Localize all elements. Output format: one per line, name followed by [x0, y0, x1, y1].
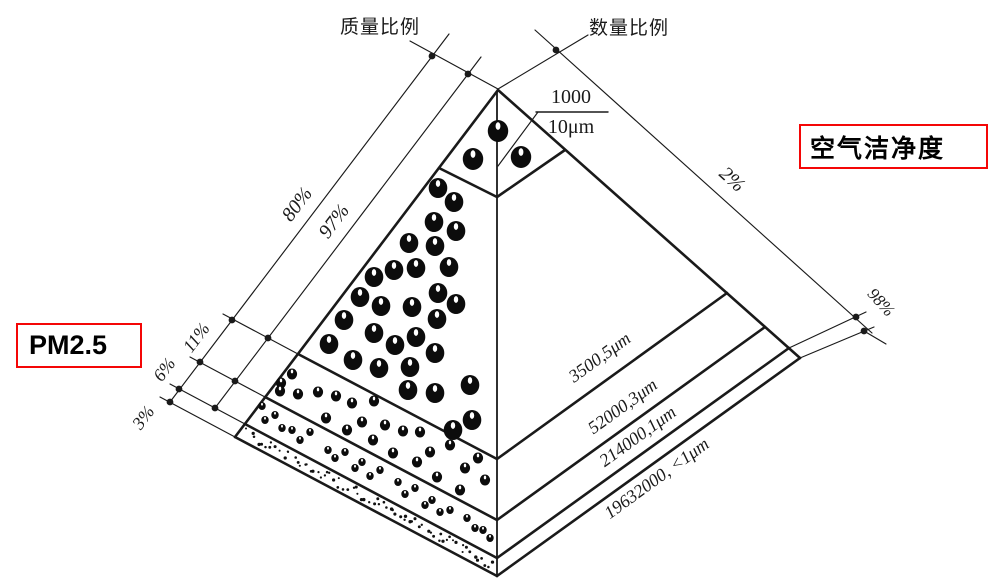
particle-3um [287, 369, 297, 380]
particle-1um [366, 472, 373, 480]
particle-sub1um-speck [454, 541, 457, 544]
particle-3um [398, 426, 408, 437]
particle-sub1um-speck [245, 428, 247, 430]
particle-1um [401, 490, 408, 498]
pyramid-bottom-left-edge [235, 437, 497, 576]
particle-3um [368, 435, 378, 446]
particle-5um [426, 343, 445, 363]
band1-boundary-left [298, 354, 497, 459]
particle-1um [296, 436, 303, 444]
particle-sub1um-speck [355, 485, 358, 488]
particle-1um [358, 458, 365, 466]
particle-sub1um-speck [430, 531, 432, 533]
dimension-dot [265, 335, 272, 342]
pyramid-lines [160, 30, 886, 576]
particle-5um [351, 287, 370, 307]
particle-5um [447, 221, 466, 241]
particle-sub1um-speck [421, 524, 423, 526]
particle-sub1um-speck [418, 525, 421, 528]
particle-sub1um-speck [465, 546, 468, 549]
particle-sub1um-speck [279, 450, 281, 452]
particle-sub1um-speck [253, 436, 256, 439]
particle-sub1um-speck [448, 535, 451, 538]
particle-sub1um-speck [480, 557, 483, 560]
particle-sub1um-speck [328, 472, 330, 474]
particle-3um [293, 389, 303, 400]
particle-sub1um-speck [368, 501, 370, 503]
particle-1um [271, 411, 278, 419]
mass-leader-line [410, 41, 498, 89]
particle-sub1um-speck [268, 446, 271, 449]
particle-sub1um-speck [324, 474, 326, 476]
particle-10um [488, 120, 508, 142]
particle-sub1um-speck [252, 432, 255, 435]
particle-5um [445, 192, 464, 212]
particle-1um [331, 454, 338, 462]
particle-sub1um-speck [452, 539, 454, 541]
particle-sub1um-speck [399, 515, 402, 518]
count-percent-98: 98% [864, 284, 899, 320]
particle-sub1um-speck [336, 486, 339, 489]
apex-band-left-edge [439, 168, 497, 197]
particle-sub1um-speck [274, 445, 277, 448]
fraction-denominator: 10μm [548, 116, 595, 138]
particle-5um [386, 335, 405, 355]
particle-1um [446, 506, 453, 514]
particle-sub1um-speck [332, 478, 335, 481]
particle-1um [324, 446, 331, 454]
particle-1um [463, 514, 470, 522]
band2-boundary-left [265, 397, 497, 520]
particle-sub1um-speck [468, 550, 471, 553]
particle-5um [428, 309, 447, 329]
dimension-dot [429, 53, 436, 60]
pm25-label: PM2.5 [29, 330, 107, 361]
particle-sub1um-speck [376, 497, 379, 500]
particle-5um [372, 296, 391, 316]
particle-5um [407, 327, 426, 347]
particle-5um [320, 334, 339, 354]
particle-sub1um-speck [346, 488, 349, 491]
particle-sub1um-speck [391, 509, 394, 512]
particle-sub1um-speck [441, 540, 444, 543]
particle-sub1um-speck [260, 443, 263, 446]
particle-5um [399, 380, 418, 400]
particle-5um [447, 294, 466, 314]
particle-1um [261, 416, 268, 424]
particle-sub1um-speck [491, 560, 494, 563]
particle-10um [511, 146, 531, 168]
particle-1um [288, 426, 295, 434]
particle-3um [380, 420, 390, 431]
particle-sub1um-speck [373, 502, 376, 505]
pm25-pyramid-diagram: 质量比例 数量比例 1000 10μm 80%97%11%6%3%2%98%35… [0, 0, 1000, 584]
particle-sub1um-speck [320, 476, 322, 478]
particle-sub1um-speck [413, 517, 416, 520]
particle-1um [306, 428, 313, 436]
particle-sub1um-speck [476, 559, 479, 562]
particle-3um [415, 427, 425, 438]
particle-sub1um-speck [383, 501, 386, 504]
particle-sub1um-speck [287, 451, 289, 453]
particle-1um [421, 501, 428, 509]
particle-1um [376, 466, 383, 474]
particle-1um [341, 448, 348, 456]
particle-sub1um-speck [338, 477, 340, 479]
particle-1um [258, 402, 265, 410]
particle-sub1um-speck [483, 564, 486, 567]
dimension-dot [176, 386, 183, 393]
particle-sub1um-speck [297, 461, 300, 464]
particle-1um [394, 478, 401, 486]
particle-3um [425, 447, 435, 458]
particle-1um [486, 534, 493, 542]
dimension-dot [232, 378, 239, 385]
mass-percent-80: 80% [277, 183, 317, 226]
particle-5um [426, 236, 445, 256]
particle-3um [480, 475, 490, 486]
diagram-canvas: 质量比例 数量比例 1000 10μm 80%97%11%6%3%2%98%35… [0, 0, 1000, 584]
particle-sub1um-speck [326, 471, 329, 474]
particle-1um [428, 496, 435, 504]
particle-1um [436, 508, 443, 516]
particle-5um [444, 420, 463, 440]
particle-3um [432, 472, 442, 483]
dimension-dot [465, 71, 472, 78]
particle-5um [426, 383, 445, 403]
particle-sub1um-speck [393, 513, 396, 516]
count-ratio-label: 数量比例 [589, 17, 669, 39]
particle-sub1um-speck [403, 519, 405, 521]
particle-5um [403, 297, 422, 317]
particle-3um [313, 387, 323, 398]
particle-3um [445, 440, 455, 451]
particle-5um [440, 257, 459, 277]
particle-3um [275, 386, 285, 397]
particle-sub1um-speck [385, 506, 388, 509]
dimension-dots [167, 47, 868, 412]
particle-5um [365, 267, 384, 287]
dimension-dot [853, 314, 860, 321]
particle-sub1um-speck [432, 535, 435, 538]
particle-sub1um-speck [306, 463, 308, 465]
particle-sub1um-speck [404, 515, 407, 518]
particle-sub1um-speck [462, 551, 464, 553]
dimension-dot [229, 317, 236, 324]
count-leader-line [498, 35, 588, 89]
mass-percent-97: 97% [314, 200, 354, 243]
particle-sub1um-speck [270, 441, 272, 443]
dimension-dot [197, 359, 204, 366]
particle-3um [342, 425, 352, 436]
dimension-dot [553, 47, 560, 54]
particle-sub1um-speck [439, 533, 442, 536]
pyramid-right-edge [498, 90, 800, 358]
particle-sub1um-speck [378, 503, 380, 505]
mass-ratio-label: 质量比例 [340, 16, 420, 38]
particle-5um [385, 260, 404, 280]
mass-rail-outer [170, 34, 449, 402]
particle-sub1um-speck [362, 498, 365, 501]
particle-5um [365, 323, 384, 343]
particle-3um [369, 396, 379, 407]
particle-sub1um-speck [487, 566, 490, 569]
particle-5um [400, 233, 419, 253]
particle-5um [344, 350, 363, 370]
particle-3um [412, 457, 422, 468]
count-percent-2: 2% [715, 162, 750, 196]
particle-sub1um-speck [356, 493, 358, 495]
band-label-5um: 3500,5μm [564, 328, 634, 387]
particle-5um [401, 357, 420, 377]
particle-sub1um-speck [438, 540, 440, 542]
particle-5um [429, 283, 448, 303]
particle-1um [351, 464, 358, 472]
mass-percent-3: 3% [127, 402, 158, 434]
particle-5um [429, 178, 448, 198]
particle-5um [425, 212, 444, 232]
air-cleanliness-label: 空气洁净度 [810, 129, 945, 165]
particle-5um [407, 258, 426, 278]
count-rail-98-segment [864, 331, 886, 344]
air-cleanliness-label-box: 空气洁净度 [799, 124, 988, 169]
particle-sub1um-speck [474, 555, 477, 558]
particle-1um [471, 524, 478, 532]
pm25-label-box: PM2.5 [16, 323, 142, 368]
dimension-dot [861, 328, 868, 335]
particle-sub1um-speck [264, 446, 266, 448]
particle-sub1um-speck [462, 544, 464, 546]
particle-1um [278, 424, 285, 432]
particle-3um [357, 417, 367, 428]
particle-3um [473, 453, 483, 464]
particle-5um [335, 310, 354, 330]
particle-5um [370, 358, 389, 378]
mass-percent-6: 6% [149, 354, 179, 385]
particle-3um [388, 448, 398, 459]
particle-3um [347, 398, 357, 409]
particle-sub1um-speck [284, 456, 287, 459]
particle-5um [463, 410, 482, 430]
count-rail [535, 30, 872, 333]
particle-1um [411, 484, 418, 492]
dimension-dot [167, 399, 174, 406]
fraction-numerator: 1000 [551, 86, 591, 108]
particle-1um [479, 526, 486, 534]
particle-10um [463, 148, 483, 170]
particle-5um [461, 375, 480, 395]
particle-sub1um-speck [317, 471, 319, 473]
particle-3um [321, 413, 331, 424]
particle-3um [460, 463, 470, 474]
particle-3um [455, 485, 465, 496]
particle-sub1um-speck [311, 470, 314, 473]
particle-3um [331, 391, 341, 402]
particle-sub1um-speck [294, 456, 297, 459]
dimension-dot [212, 405, 219, 412]
particle-sub1um-speck [299, 465, 301, 467]
particle-sub1um-speck [410, 520, 413, 523]
particle-sub1um-speck [446, 539, 448, 541]
particle-sub1um-speck [342, 488, 345, 491]
